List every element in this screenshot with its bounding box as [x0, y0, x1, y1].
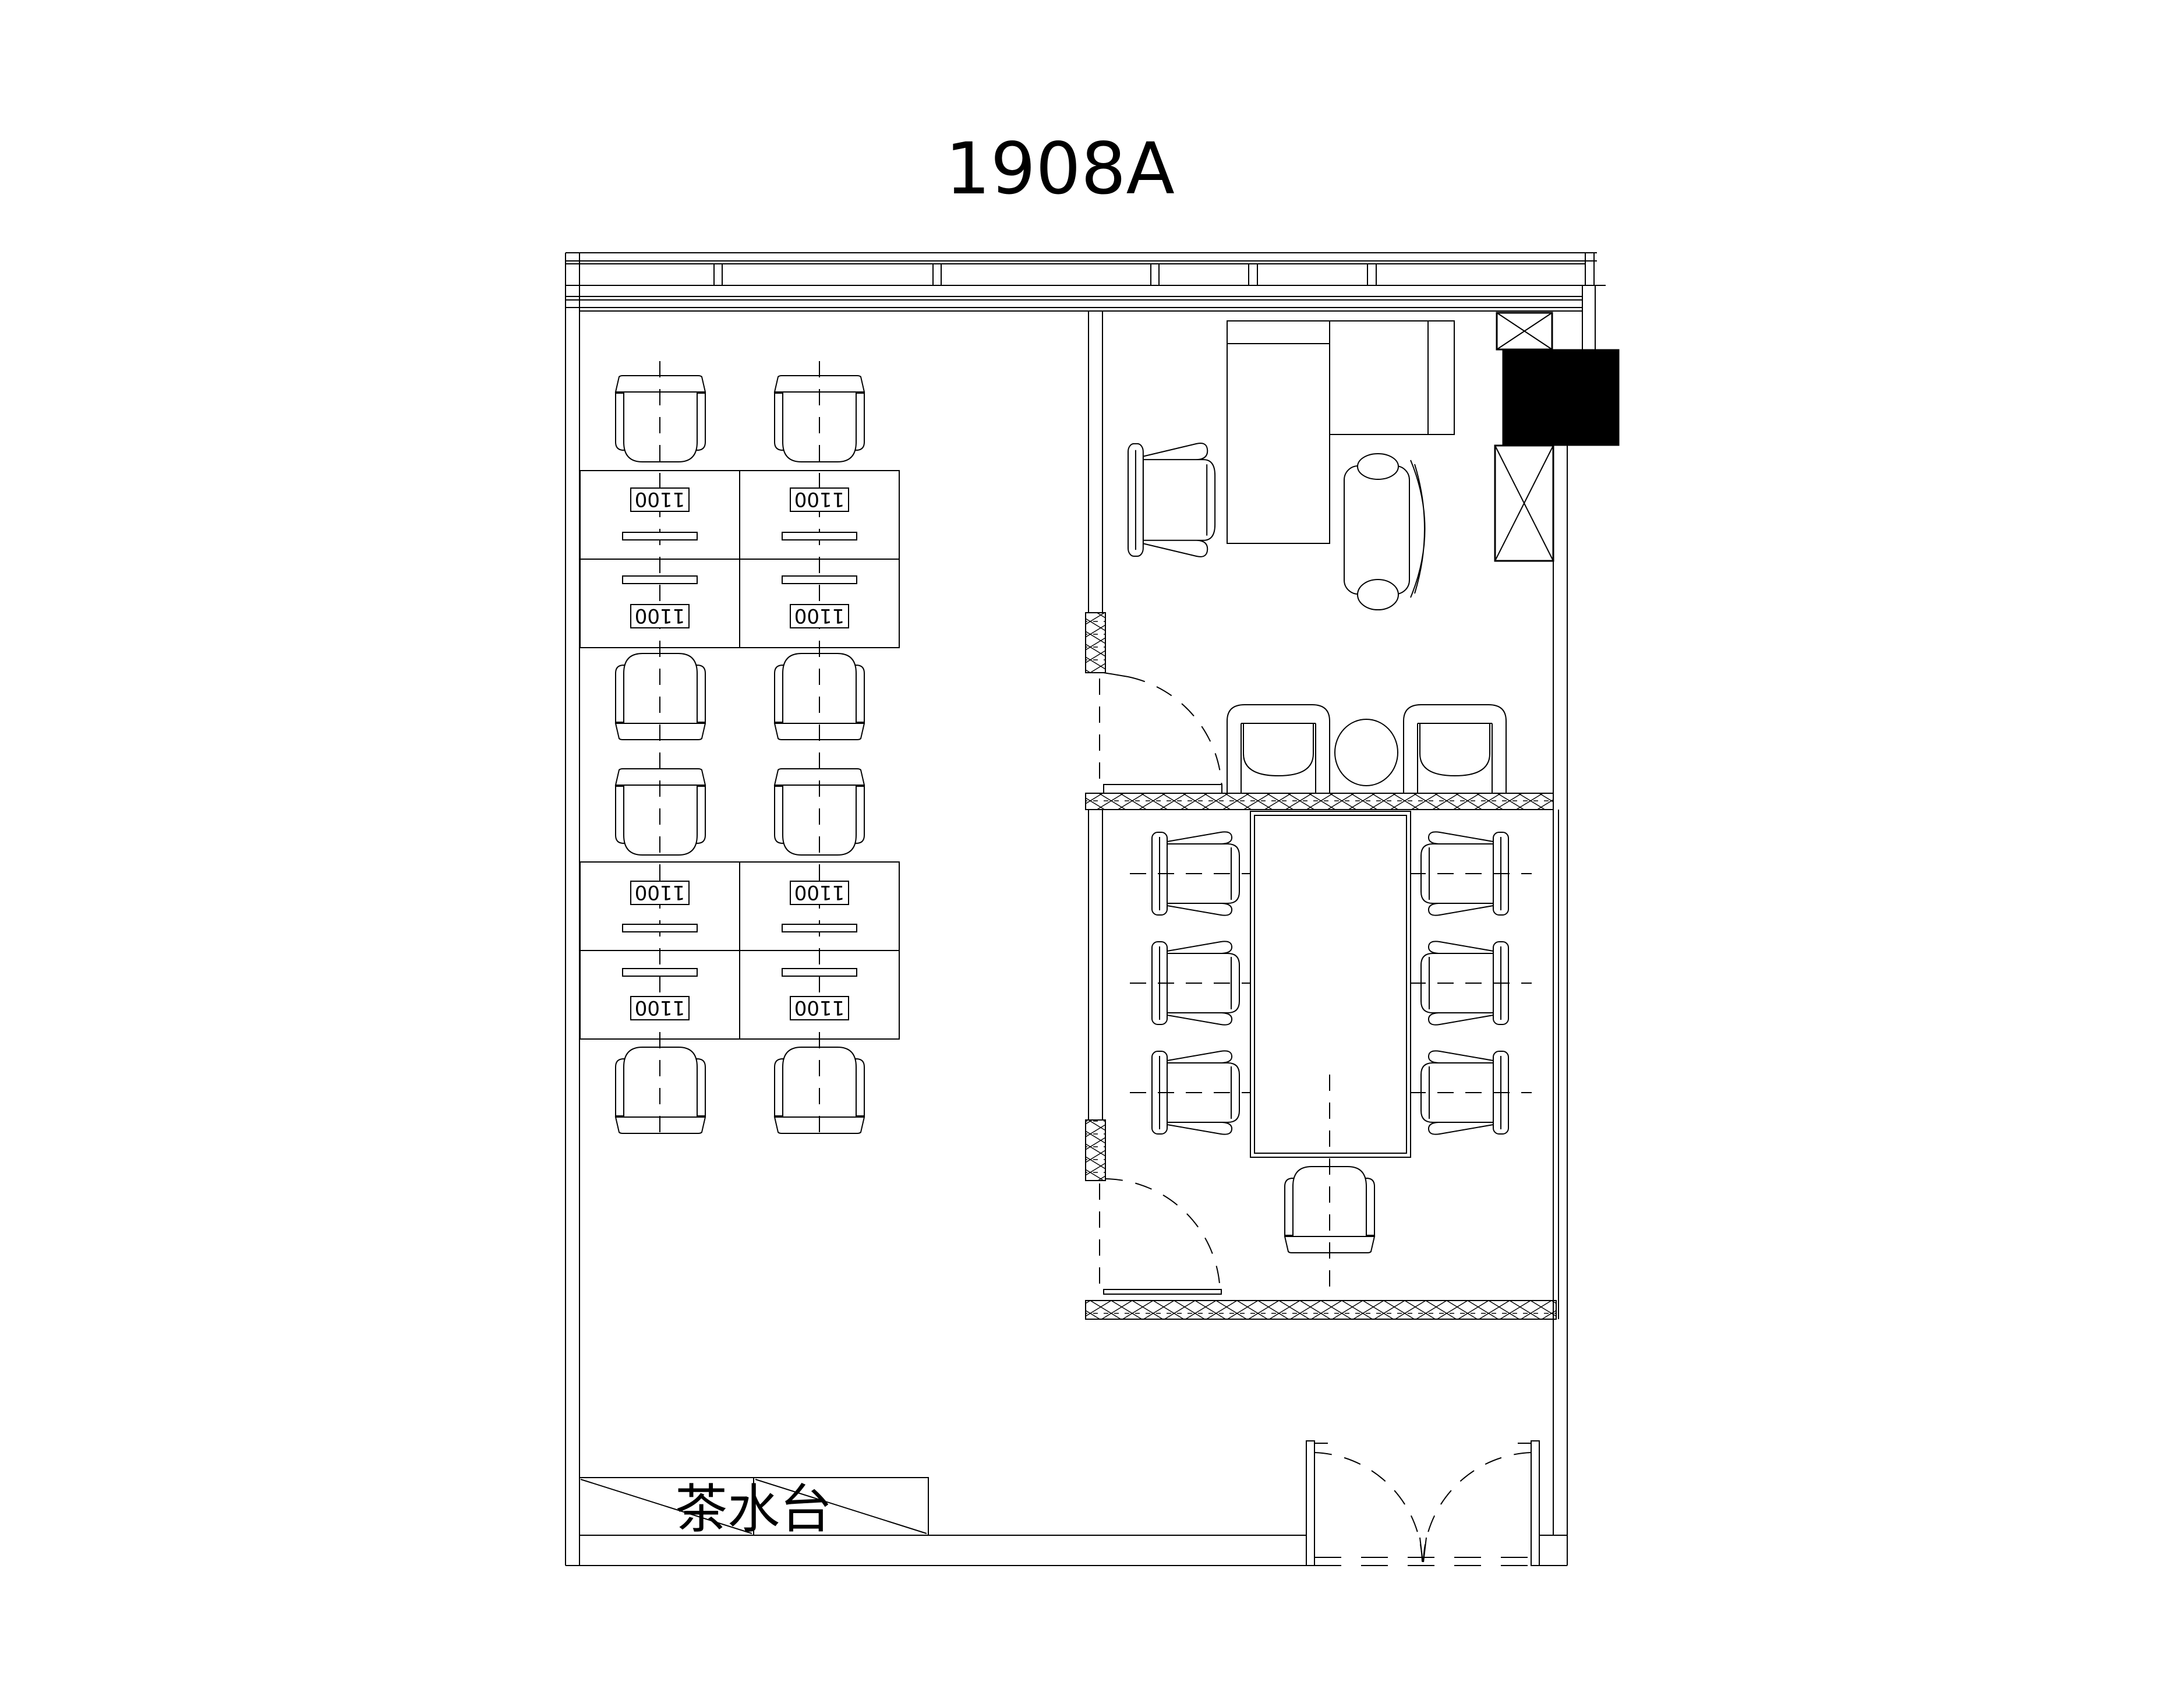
- entrance-double-door: [1306, 1441, 1539, 1566]
- meeting-room-bottom-hatched-wall: [1086, 1301, 1556, 1319]
- door-swing-arc: [1423, 1453, 1531, 1564]
- right-exterior-wall: [1553, 285, 1595, 1566]
- lounge-seating: [1227, 705, 1506, 793]
- desk-label: 1100: [794, 996, 845, 1019]
- desk-label: 1100: [794, 487, 845, 511]
- workstation-desk-bank-1: [580, 471, 899, 648]
- workstation-desk-bank-2: [580, 862, 899, 1039]
- curtain-wall-band: [566, 253, 1606, 311]
- tea-station: 茶水台: [579, 1478, 928, 1540]
- door-sill-shelf: [1104, 785, 1222, 793]
- door-swing-arc: [1128, 677, 1222, 790]
- desk-label: 1100: [794, 604, 845, 627]
- office-partition-wall: [1086, 311, 1105, 673]
- curtain-wall-mullions: [714, 253, 1594, 285]
- meeting-room-door-swing: [1100, 1179, 1221, 1294]
- executive-chair: [1344, 454, 1425, 610]
- desk-label: 1100: [635, 881, 685, 904]
- floor-plan-drawing: 1908A: [0, 0, 2184, 1689]
- door-leaf: [1306, 1441, 1314, 1566]
- hatched-wall-post: [1086, 1120, 1105, 1181]
- lounge-armchair: [1227, 705, 1330, 793]
- tea-station-label: 茶水台: [675, 1479, 832, 1540]
- lounge-armchair: [1404, 705, 1506, 793]
- meeting-room-top-hatched-wall: [1086, 793, 1553, 810]
- door-swing-arc: [1314, 1453, 1422, 1564]
- executive-office: [1128, 321, 1454, 610]
- desk-return-cabinet: [1330, 321, 1454, 434]
- floor-plan-canvas: 1908A: [0, 0, 2184, 1689]
- conference-table: [1250, 811, 1411, 1157]
- plan-title: 1908A: [945, 128, 1175, 210]
- door-leaf: [1104, 1289, 1221, 1294]
- door-leaf: [1104, 673, 1128, 677]
- column-box-tall: [1495, 446, 1553, 561]
- door-swing-arc: [1105, 1179, 1220, 1294]
- column-box-small: [1497, 313, 1552, 349]
- meeting-chair-end: [1285, 1167, 1374, 1253]
- guest-chair: [1128, 443, 1215, 557]
- left-exterior-wall: [566, 253, 579, 1566]
- desk-label: 1100: [635, 487, 685, 511]
- executive-desk: [1227, 321, 1330, 543]
- desk-label: 1100: [635, 996, 685, 1019]
- office-door-swing: [1100, 673, 1222, 790]
- hatched-wall-post: [1086, 613, 1105, 673]
- desk-label: 1100: [635, 604, 685, 627]
- door-leaf: [1531, 1441, 1539, 1566]
- oval-side-table: [1335, 719, 1398, 786]
- desk-label: 1100: [794, 881, 845, 904]
- service-shaft-black-block: [1503, 349, 1619, 446]
